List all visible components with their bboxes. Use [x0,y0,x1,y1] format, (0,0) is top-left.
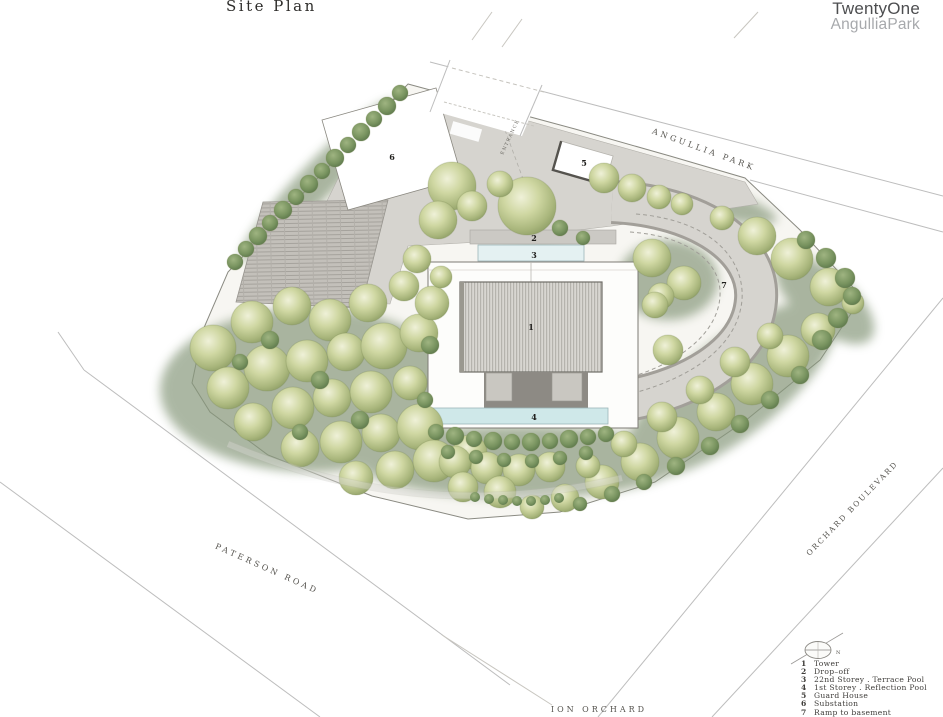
marker-guard-house: 5 [581,158,587,168]
road-stub-2 [502,19,522,47]
site-plan-page: Site Plan TwentyOne AngulliaPark [0,0,943,717]
dropoff-band [470,230,616,244]
marker-dropoff: 2 [531,233,537,243]
legend-num: 7 [801,709,814,717]
legend-label: Ramp to basement [814,709,891,717]
marker-tower: 1 [528,322,534,332]
paterson-road-lower-edge [0,482,320,717]
site-plan-drawing: ANGULLIA PARK PATERSON ROAD ORCHARD BOUL… [0,0,943,717]
marker-reflection-pool: 4 [531,412,537,422]
legend-item: 7 Ramp to basement [801,709,927,717]
tower-roof-shade [460,282,464,372]
junction-line [442,635,552,705]
reflection-pool [426,408,608,424]
paterson-road-label: PATERSON ROAD [214,542,320,596]
north-label: N [836,650,841,656]
marker-substation: 6 [389,152,395,162]
marker-ramp: 7 [721,280,727,290]
road-stub-1 [472,12,492,40]
lower-block-right [552,373,582,401]
ion-orchard-label: ION ORCHARD [551,705,647,714]
marker-terrace-pool: 3 [531,250,537,260]
legend: 1 Tower 2 Drop–off 3 22nd Storey . Terra… [801,660,927,717]
road-stub-3 [734,12,758,38]
orchard-boulevard-label: ORCHARD BOULEVARD [804,459,899,557]
paterson-road-corner [58,332,84,370]
lower-block-left [486,373,512,401]
